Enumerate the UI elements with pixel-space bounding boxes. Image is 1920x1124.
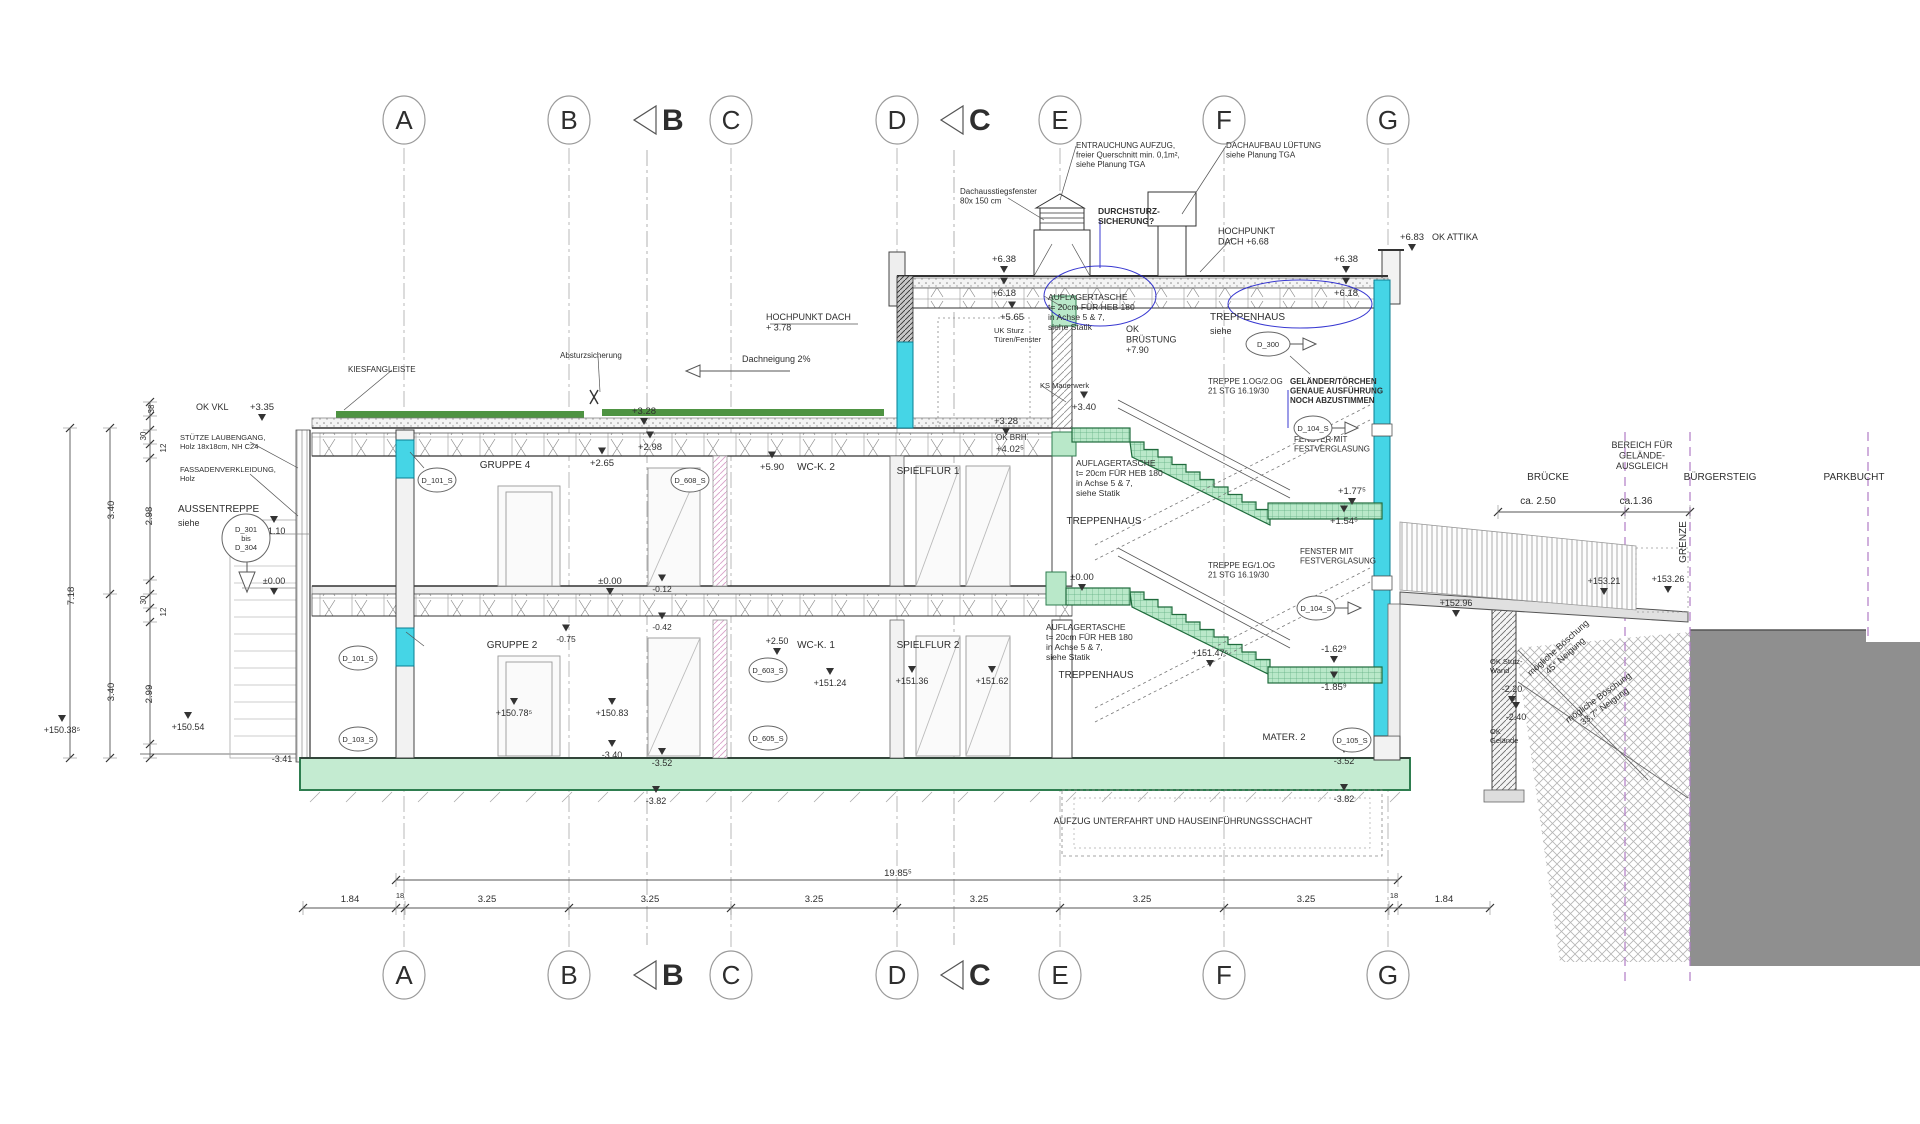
svg-text:-0.75: -0.75 — [556, 634, 576, 644]
svg-text:+150.83: +150.83 — [596, 708, 629, 718]
svg-text:+6.38: +6.38 — [1334, 254, 1358, 265]
svg-text:BÜRGERSTEIG: BÜRGERSTEIG — [1684, 471, 1757, 483]
wall-axis-c-og — [713, 456, 727, 586]
svg-text:±0.00: ±0.00 — [1070, 572, 1094, 583]
svg-text:D_300: D_300 — [1257, 340, 1279, 349]
svg-text:AUFZUG UNTERFAHRT UND HAUSEINF: AUFZUG UNTERFAHRT UND HAUSEINFÜHRUNGSSCH… — [1054, 816, 1313, 826]
wall-axis-c-eg — [713, 620, 727, 758]
annotation: ca.1.36 — [1620, 496, 1653, 507]
svg-text:KS Mauerwerk: KS Mauerwerk — [1040, 381, 1089, 390]
svg-text:Dachneigung 2%: Dachneigung 2% — [742, 354, 811, 364]
svg-text:MATER. 2: MATER. 2 — [1262, 732, 1305, 743]
svg-text:D: D — [888, 960, 907, 990]
svg-text:+2.98: +2.98 — [638, 442, 662, 453]
svg-text:DURCHSTURZ-SICHERUNG?: DURCHSTURZ-SICHERUNG? — [1098, 206, 1160, 226]
annotation: 2.98 — [144, 507, 155, 526]
svg-text:OK VKL: OK VKL — [196, 402, 229, 412]
svg-text:D_103_S: D_103_S — [342, 735, 373, 744]
svg-text:+4.02⁵: +4.02⁵ — [996, 444, 1024, 455]
annotation: TREPPENHAUS — [1066, 516, 1141, 527]
door-tag: D_105_S — [1333, 728, 1371, 752]
section-canvas: AABBCCDDEEFFGGBBCC — [0, 0, 1920, 1124]
svg-text:3.40: 3.40 — [106, 501, 117, 520]
svg-text:-3.52: -3.52 — [1334, 756, 1355, 766]
svg-text:2.99: 2.99 — [144, 685, 155, 704]
stair-glazing — [1374, 280, 1390, 424]
annotation: 3.40 — [106, 501, 117, 520]
svg-text:19.85⁵: 19.85⁵ — [884, 868, 912, 879]
svg-text:D_603_S: D_603_S — [752, 666, 783, 675]
svg-text:30: 30 — [139, 595, 148, 604]
svg-text:C: C — [969, 104, 991, 137]
annotation: SPIELFLUR 2 — [897, 640, 960, 651]
svg-text:A: A — [395, 105, 413, 135]
svg-text:+3.28: +3.28 — [994, 416, 1018, 427]
svg-text:+153.21: +153.21 — [1588, 576, 1621, 586]
annotation: 7.18 — [66, 587, 77, 606]
svg-text:SPIELFLUR 2: SPIELFLUR 2 — [897, 640, 960, 651]
svg-text:+150.54: +150.54 — [172, 722, 205, 732]
svg-text:18: 18 — [1390, 891, 1398, 900]
svg-text:±0.00: ±0.00 — [598, 576, 622, 587]
annotation: 3.25 — [1133, 894, 1152, 905]
svg-text:+2.65: +2.65 — [590, 458, 614, 469]
window-eg — [396, 628, 414, 666]
annotation: 3.25 — [970, 894, 989, 905]
west-facade-cladding — [296, 430, 310, 762]
svg-text:3.25: 3.25 — [970, 894, 989, 905]
svg-text:OK BRH: OK BRH — [996, 433, 1027, 442]
svg-text:C: C — [969, 959, 991, 992]
annotation: SPIELFLUR 1 — [897, 466, 960, 477]
door-tag: D_608_S — [671, 468, 709, 492]
annotation: AUSSENTREPPE — [178, 504, 259, 515]
svg-text:7.18: 7.18 — [66, 587, 77, 606]
annotation: OK ATTIKA — [1432, 232, 1478, 242]
architectural-section-drawing: AABBCCDDEEFFGGBBCC — [0, 0, 1920, 1124]
annotation: 30 — [139, 595, 148, 604]
annotation: TREPPE EG/1.OG21 STG 16.19/30 — [1208, 561, 1275, 579]
svg-text:1.84: 1.84 — [1435, 894, 1454, 905]
door-tag: D_603_S — [749, 658, 787, 682]
svg-text:-1.62⁹: -1.62⁹ — [1321, 644, 1347, 655]
svg-text:+151.24: +151.24 — [814, 678, 847, 688]
annotation: 3.25 — [478, 894, 497, 905]
annotation: KS Mauerwerk — [1040, 381, 1089, 390]
svg-text:+6.18: +6.18 — [992, 288, 1016, 299]
svg-text:+151.47⁵: +151.47⁵ — [1192, 648, 1229, 658]
svg-text:GRUPPE 4: GRUPPE 4 — [480, 460, 531, 471]
svg-text:+150.78⁵: +150.78⁵ — [496, 708, 533, 718]
svg-text:+5.65: +5.65 — [1000, 312, 1024, 323]
annotation: TREPPENHAUS — [1058, 670, 1133, 681]
annotation: -3.41 — [272, 754, 293, 764]
svg-text:30: 30 — [139, 431, 148, 440]
grid-axis-D: D — [876, 951, 918, 999]
annotation: KIESFANGLEISTE — [348, 365, 416, 374]
annotation: GRENZE — [1678, 521, 1689, 563]
svg-text:AUSSENTREPPE: AUSSENTREPPE — [178, 504, 259, 515]
grid-axis-C: C — [710, 96, 752, 144]
svg-text:38: 38 — [147, 404, 156, 413]
svg-text:G: G — [1378, 105, 1398, 135]
svg-text:3.25: 3.25 — [478, 894, 497, 905]
grid-axis-A: A — [383, 951, 425, 999]
grid-axis-G: G — [1367, 951, 1409, 999]
annotation: Absturzsicherung — [560, 351, 622, 360]
svg-text:+5.90: +5.90 — [760, 462, 784, 473]
grid-axis-F: F — [1203, 96, 1245, 144]
annotation: 30 — [139, 431, 148, 440]
svg-text:HOCHPUNKTDACH +6.68: HOCHPUNKTDACH +6.68 — [1218, 226, 1276, 247]
svg-text:D_104_S: D_104_S — [1300, 604, 1331, 613]
annotation: GELÄNDER/TÖRCHENGENAUE AUSFÜHRUNGNOCH AB… — [1290, 377, 1383, 405]
grid-axis-G: G — [1367, 96, 1409, 144]
svg-text:-2.20: -2.20 — [1502, 684, 1523, 694]
annotation: 3.25 — [1297, 894, 1316, 905]
grid-axis-E: E — [1039, 96, 1081, 144]
svg-text:D: D — [888, 105, 907, 135]
svg-text:18: 18 — [396, 891, 404, 900]
svg-text:3.25: 3.25 — [641, 894, 660, 905]
annotation: 3.25 — [641, 894, 660, 905]
annotation: Dachneigung 2% — [742, 354, 811, 364]
svg-text:D_608_S: D_608_S — [674, 476, 705, 485]
svg-text:±0.00: ±0.00 — [263, 576, 285, 586]
svg-text:WC-K. 1: WC-K. 1 — [797, 640, 835, 651]
ground-mass — [1690, 630, 1920, 966]
annotation: AUFZUG UNTERFAHRT UND HAUSEINFÜHRUNGSSCH… — [1054, 816, 1313, 826]
annotation: 18 — [1390, 891, 1398, 900]
svg-text:-3.41: -3.41 — [272, 754, 293, 764]
annotation: GRUPPE 2 — [487, 640, 538, 651]
svg-text:E: E — [1051, 960, 1068, 990]
svg-text:siehe: siehe — [1210, 326, 1232, 336]
svg-text:-0.42: -0.42 — [652, 622, 672, 632]
svg-text:+3.40: +3.40 — [1072, 402, 1096, 413]
svg-text:+152.96: +152.96 — [1440, 598, 1473, 608]
svg-text:GELÄNDER/TÖRCHENGENAUE AUSFÜHR: GELÄNDER/TÖRCHENGENAUE AUSFÜHRUNGNOCH AB… — [1290, 377, 1383, 405]
svg-text:ca.1.36: ca.1.36 — [1620, 496, 1653, 507]
svg-text:D_101_S: D_101_S — [421, 476, 452, 485]
retaining-wall — [1492, 600, 1516, 790]
svg-text:+3.35: +3.35 — [250, 402, 274, 413]
annotation: 12 — [159, 607, 168, 616]
svg-text:WC-K. 2: WC-K. 2 — [797, 462, 835, 473]
svg-text:D_605_S: D_605_S — [752, 734, 783, 743]
svg-text:-3.82: -3.82 — [1334, 794, 1355, 804]
grid-axis-E: E — [1039, 951, 1081, 999]
svg-text:B: B — [662, 959, 684, 992]
svg-text:1.84: 1.84 — [341, 894, 360, 905]
svg-text:-3.40: -3.40 — [602, 750, 623, 760]
svg-text:C: C — [722, 960, 741, 990]
svg-text:ca. 2.50: ca. 2.50 — [1520, 496, 1556, 507]
annotation: BEREICH FÜRGELÄNDE-AUSGLEICH — [1611, 440, 1673, 471]
svg-text:+6.18: +6.18 — [1334, 288, 1358, 299]
svg-text:3.40: 3.40 — [106, 683, 117, 702]
annotation: 1.84 — [1435, 894, 1454, 905]
annotation: +4.02⁵ — [996, 444, 1024, 455]
svg-text:PARKBUCHT: PARKBUCHT — [1824, 472, 1885, 483]
svg-text:F: F — [1216, 960, 1232, 990]
annotation: MATER. 2 — [1262, 732, 1305, 743]
svg-text:+6.83: +6.83 — [1400, 232, 1424, 243]
annotation: ca. 2.50 — [1520, 496, 1556, 507]
svg-text:OK ATTIKA: OK ATTIKA — [1432, 232, 1478, 242]
annotation: OK BRH — [996, 433, 1027, 442]
annotation: 38 — [147, 404, 156, 413]
door-tag: D_605_S — [749, 726, 787, 750]
svg-text:3.25: 3.25 — [1297, 894, 1316, 905]
svg-text:TREPPENHAUS: TREPPENHAUS — [1210, 312, 1285, 323]
annotation: HOCHPUNKTDACH +6.68 — [1218, 226, 1276, 247]
svg-text:+1.77⁵: +1.77⁵ — [1338, 486, 1366, 497]
annotation: BRÜCKE — [1527, 471, 1569, 483]
svg-text:TREPPENHAUS: TREPPENHAUS — [1066, 516, 1141, 527]
grid-axis-D: D — [876, 96, 918, 144]
annotation: OK VKL — [196, 402, 229, 412]
annotation: 1.84 — [341, 894, 360, 905]
svg-text:12: 12 — [159, 607, 168, 616]
svg-text:-0.12: -0.12 — [652, 584, 672, 594]
svg-text:3.25: 3.25 — [1133, 894, 1152, 905]
svg-text:+1.54⁵: +1.54⁵ — [1330, 516, 1358, 527]
annotation: 18 — [396, 891, 404, 900]
door-tag: D_101_S — [418, 468, 456, 492]
svg-text:SPIELFLUR 1: SPIELFLUR 1 — [897, 466, 960, 477]
grid-axis-B: B — [548, 951, 590, 999]
svg-text:+6.38: +6.38 — [992, 254, 1016, 265]
annotation: 3.25 — [805, 894, 824, 905]
grid-axis-C: C — [710, 951, 752, 999]
svg-text:G: G — [1378, 960, 1398, 990]
annotation: WC-K. 1 — [797, 640, 835, 651]
annotation: 12 — [159, 443, 168, 452]
floor-slab-og — [312, 586, 1072, 616]
svg-text:+150.38⁵: +150.38⁵ — [44, 725, 81, 735]
svg-text:Absturzsicherung: Absturzsicherung — [560, 351, 622, 360]
door-tag: D_301bisD_304 — [222, 514, 270, 562]
svg-text:C: C — [722, 105, 741, 135]
svg-text:BEREICH FÜRGELÄNDE-AUSGLEICH: BEREICH FÜRGELÄNDE-AUSGLEICH — [1611, 440, 1673, 471]
annotation: STÜTZE LAUBENGANG,Holz 18x18cm, NH C24 — [180, 433, 265, 451]
svg-text:A: A — [395, 960, 413, 990]
svg-text:B: B — [662, 104, 684, 137]
stair-glazing — [1374, 590, 1390, 736]
annotation: PARKBUCHT — [1824, 472, 1885, 483]
svg-text:-3.52: -3.52 — [652, 758, 673, 768]
wall-axis-a — [396, 430, 414, 758]
annotation: siehe — [1210, 326, 1232, 336]
svg-text:STÜTZE LAUBENGANG,Holz 18x18cm: STÜTZE LAUBENGANG,Holz 18x18cm, NH C24 — [180, 433, 265, 451]
svg-text:B: B — [560, 960, 577, 990]
grid-axis-F: F — [1203, 951, 1245, 999]
svg-text:KIESFANGLEISTE: KIESFANGLEISTE — [348, 365, 416, 374]
annotation: 2.99 — [144, 685, 155, 704]
svg-text:F: F — [1216, 105, 1232, 135]
svg-text:+2.50: +2.50 — [766, 636, 789, 646]
svg-text:GRENZE: GRENZE — [1678, 521, 1689, 563]
svg-text:2.98: 2.98 — [144, 507, 155, 526]
svg-text:D_101_S: D_101_S — [342, 654, 373, 663]
svg-text:+151.36: +151.36 — [896, 676, 929, 686]
annotation: WC-K. 2 — [797, 462, 835, 473]
svg-text:B: B — [560, 105, 577, 135]
svg-text:-2.40: -2.40 — [1506, 712, 1527, 722]
annotation: BÜRGERSTEIG — [1684, 471, 1757, 483]
svg-text:D_104_S: D_104_S — [1297, 424, 1328, 433]
svg-text:-1.85⁹: -1.85⁹ — [1321, 682, 1347, 693]
annotation: GRUPPE 4 — [480, 460, 531, 471]
door-tag: D_101_S — [339, 646, 377, 670]
grid-axis-B: B — [548, 96, 590, 144]
grid-axis-A: A — [383, 96, 425, 144]
svg-text:+151.62: +151.62 — [976, 676, 1009, 686]
annotation: 19.85⁵ — [884, 868, 912, 879]
annotation: 3.40 — [106, 683, 117, 702]
window-og — [396, 440, 414, 478]
svg-text:12: 12 — [159, 443, 168, 452]
svg-text:+153.26: +153.26 — [1652, 574, 1685, 584]
annotation: TREPPENHAUS — [1210, 312, 1285, 323]
door-tag: D_103_S — [339, 727, 377, 751]
svg-text:-3.82: -3.82 — [646, 796, 667, 806]
svg-text:TREPPE EG/1.OG21 STG 16.19/30: TREPPE EG/1.OG21 STG 16.19/30 — [1208, 561, 1275, 579]
annotation: DURCHSTURZ-SICHERUNG? — [1098, 206, 1160, 226]
annotation: siehe — [178, 518, 200, 528]
svg-text:BRÜCKE: BRÜCKE — [1527, 471, 1569, 483]
svg-text:+3.28: +3.28 — [632, 406, 656, 417]
svg-text:E: E — [1051, 105, 1068, 135]
svg-text:D_105_S: D_105_S — [1336, 736, 1367, 745]
svg-text:3.25: 3.25 — [805, 894, 824, 905]
svg-text:siehe: siehe — [178, 518, 200, 528]
svg-text:GRUPPE 2: GRUPPE 2 — [487, 640, 538, 651]
svg-text:TREPPENHAUS: TREPPENHAUS — [1058, 670, 1133, 681]
